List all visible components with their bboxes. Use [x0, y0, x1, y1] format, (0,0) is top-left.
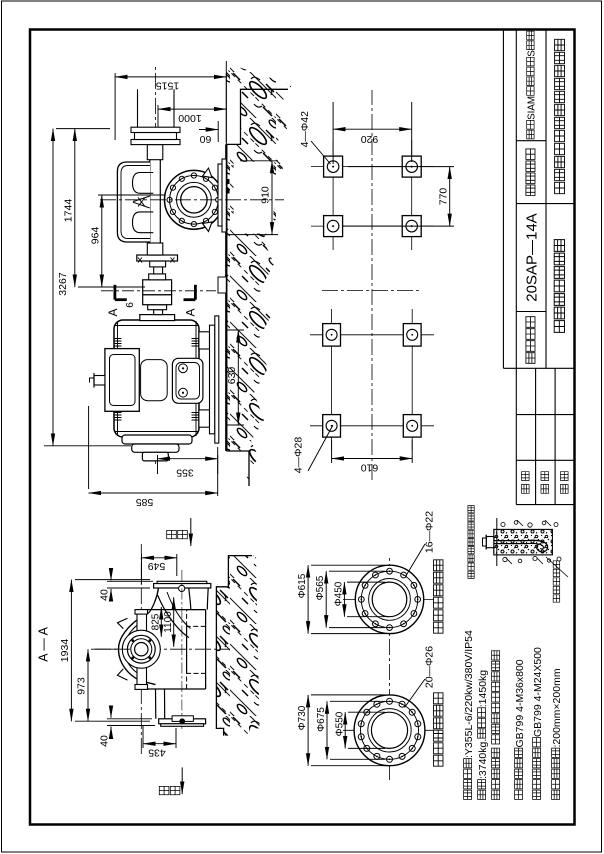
svg-text:585: 585 — [136, 496, 154, 508]
svg-text:Φ450: Φ450 — [334, 581, 345, 606]
svg-text:A: A — [106, 308, 120, 316]
svg-text:A — A: A — A — [37, 626, 51, 661]
svg-text:4—Φ28: 4—Φ28 — [293, 437, 305, 474]
svg-text:910: 910 — [260, 186, 272, 204]
svg-text:435: 435 — [148, 747, 166, 759]
svg-text:973: 973 — [76, 677, 88, 695]
svg-text:964: 964 — [90, 227, 102, 245]
svg-text:60: 60 — [200, 133, 212, 145]
svg-text:40: 40 — [99, 735, 111, 747]
svg-text:40: 40 — [99, 589, 111, 601]
svg-text:1744: 1744 — [63, 199, 75, 223]
svg-text:S: S — [527, 50, 538, 57]
svg-text:1515: 1515 — [156, 80, 180, 92]
svg-text::1450kg: :1450kg — [477, 670, 489, 708]
svg-text:630: 630 — [226, 367, 238, 385]
svg-text:Φ730: Φ730 — [297, 705, 308, 730]
svg-text:20SAP—14A: 20SAP—14A — [524, 213, 541, 301]
svg-text:355: 355 — [176, 467, 194, 479]
svg-text::Y355L-6/220kw/380V/IP54: :Y355L-6/220kw/380V/IP54 — [463, 630, 475, 758]
svg-text:825: 825 — [151, 613, 162, 630]
svg-text:SIAM: SIAM — [527, 96, 538, 120]
svg-text::3740kg.: :3740kg. — [477, 739, 489, 779]
svg-text:Φ675: Φ675 — [316, 707, 327, 732]
svg-text:6: 6 — [125, 302, 136, 308]
svg-text:1100: 1100 — [163, 611, 174, 633]
svg-text:920: 920 — [361, 133, 379, 145]
svg-text:549: 549 — [148, 560, 166, 572]
svg-text:1934: 1934 — [59, 639, 71, 663]
svg-text:Φ565: Φ565 — [315, 575, 326, 600]
svg-text:GB799 4-M24X500: GB799 4-M24X500 — [532, 647, 544, 737]
svg-text::200mm×200mm: :200mm×200mm — [551, 668, 563, 747]
svg-text:610: 610 — [361, 462, 379, 474]
svg-text:4—Φ42: 4—Φ42 — [299, 111, 311, 148]
svg-text:16—Φ22: 16—Φ22 — [424, 511, 436, 553]
svg-text:Φ550: Φ550 — [334, 711, 345, 736]
svg-text:GB799 4-M36x800: GB799 4-M36x800 — [514, 659, 526, 747]
svg-text:3267: 3267 — [57, 272, 69, 296]
svg-text:20—Φ26: 20—Φ26 — [424, 646, 436, 688]
svg-text:1000: 1000 — [178, 112, 202, 124]
svg-text:Φ615: Φ615 — [297, 573, 308, 598]
svg-text:770: 770 — [438, 188, 450, 206]
svg-text:A: A — [184, 308, 198, 316]
